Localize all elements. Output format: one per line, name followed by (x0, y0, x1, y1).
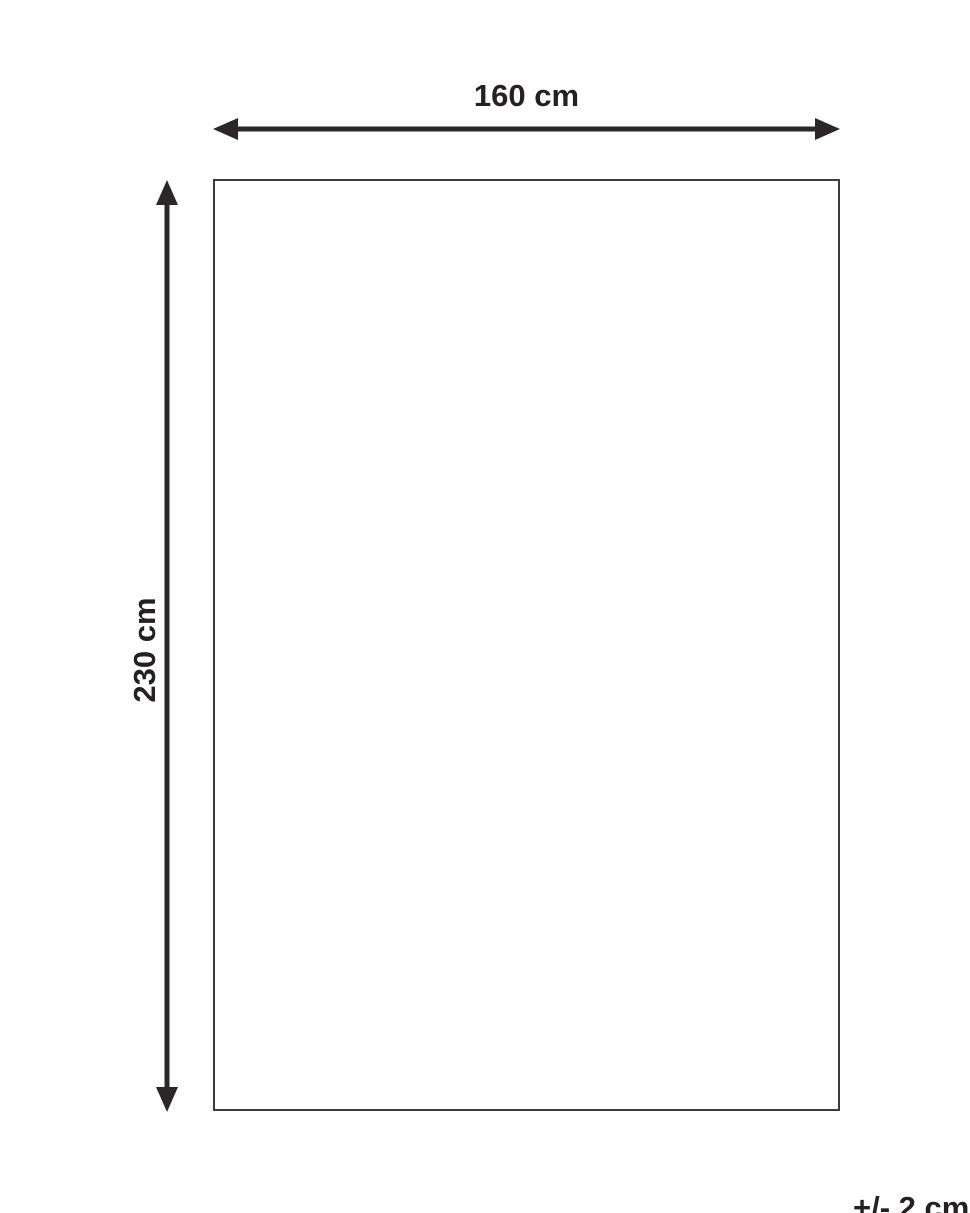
product-outline-rectangle (213, 179, 840, 1111)
arrowhead-right-icon (815, 118, 840, 140)
tolerance-label: +/- 2 cm (853, 1190, 969, 1213)
height-dimension-label: 230 cm (127, 597, 163, 702)
dimension-diagram: 160 cm 230 cm +/- 2 cm (0, 0, 970, 1213)
width-dimension-label: 160 cm (213, 78, 840, 114)
horizontal-dimension-arrow (213, 118, 840, 140)
arrowhead-left-icon (213, 118, 238, 140)
arrowhead-top-icon (156, 180, 178, 205)
arrowhead-bottom-icon (156, 1087, 178, 1112)
